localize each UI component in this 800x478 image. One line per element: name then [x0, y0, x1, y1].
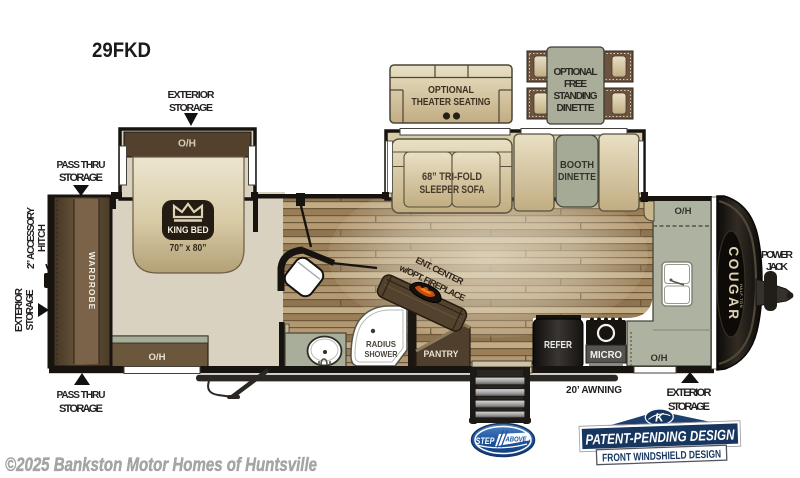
svg-text:HITCH: HITCH: [37, 224, 48, 252]
svg-text:THEATER SEATING: THEATER SEATING: [412, 97, 491, 108]
svg-text:FREE: FREE: [564, 79, 587, 90]
svg-text:PASS THRU: PASS THRU: [57, 390, 106, 401]
svg-text:OPTIONAL: OPTIONAL: [428, 84, 474, 96]
svg-text:©2025 Bankston Motor Homes of: ©2025 Bankston Motor Homes of Huntsville: [5, 455, 317, 476]
svg-text:70” x 80”: 70” x 80”: [170, 243, 207, 254]
svg-text:STEP: STEP: [476, 436, 496, 446]
svg-text:O/H: O/H: [178, 139, 196, 150]
svg-text:STORAGE: STORAGE: [668, 401, 710, 413]
svg-text:ABOVE: ABOVE: [505, 435, 528, 444]
svg-text:BOOTH: BOOTH: [560, 160, 594, 171]
svg-text:O/H: O/H: [675, 206, 692, 217]
svg-text:SLEEPER SOFA: SLEEPER SOFA: [420, 184, 485, 196]
svg-text:O/H: O/H: [149, 352, 166, 363]
svg-text:PANTRY: PANTRY: [424, 349, 460, 360]
svg-text:DINETTE: DINETTE: [557, 103, 595, 114]
svg-text:O/H: O/H: [651, 353, 668, 364]
svg-text:WARDROBE: WARDROBE: [87, 252, 97, 311]
svg-text:DINETTE: DINETTE: [558, 172, 596, 183]
svg-text:29FKD: 29FKD: [92, 38, 151, 62]
svg-text:EXTERIOR: EXTERIOR: [14, 287, 25, 332]
svg-text:POWER: POWER: [761, 249, 793, 261]
svg-text:RADIUS: RADIUS: [366, 339, 396, 349]
svg-text:KING BED: KING BED: [168, 225, 209, 236]
svg-text:HALF-TON: HALF-TON: [739, 284, 744, 308]
svg-text:STORAGE: STORAGE: [59, 172, 103, 184]
svg-text:68” TRI-FOLD: 68” TRI-FOLD: [422, 171, 482, 183]
svg-text:PASS THRU: PASS THRU: [57, 160, 106, 171]
svg-text:REFER: REFER: [544, 340, 573, 351]
svg-text:OPTIONAL: OPTIONAL: [554, 67, 598, 78]
svg-text:2” ACCESSORY: 2” ACCESSORY: [26, 207, 37, 269]
svg-text:STORAGE: STORAGE: [25, 289, 36, 330]
svg-text:STORAGE: STORAGE: [59, 403, 103, 415]
svg-text:EXTERIOR: EXTERIOR: [168, 89, 215, 101]
svg-text:STORAGE: STORAGE: [169, 102, 213, 114]
svg-text:COUGAR: COUGAR: [726, 247, 741, 322]
svg-text:MICRO: MICRO: [590, 350, 622, 361]
svg-text:EXTERIOR: EXTERIOR: [667, 387, 712, 399]
svg-text:SHOWER: SHOWER: [365, 349, 398, 359]
svg-text:20’ AWNING: 20’ AWNING: [566, 385, 622, 396]
svg-text:STANDING: STANDING: [554, 91, 598, 102]
